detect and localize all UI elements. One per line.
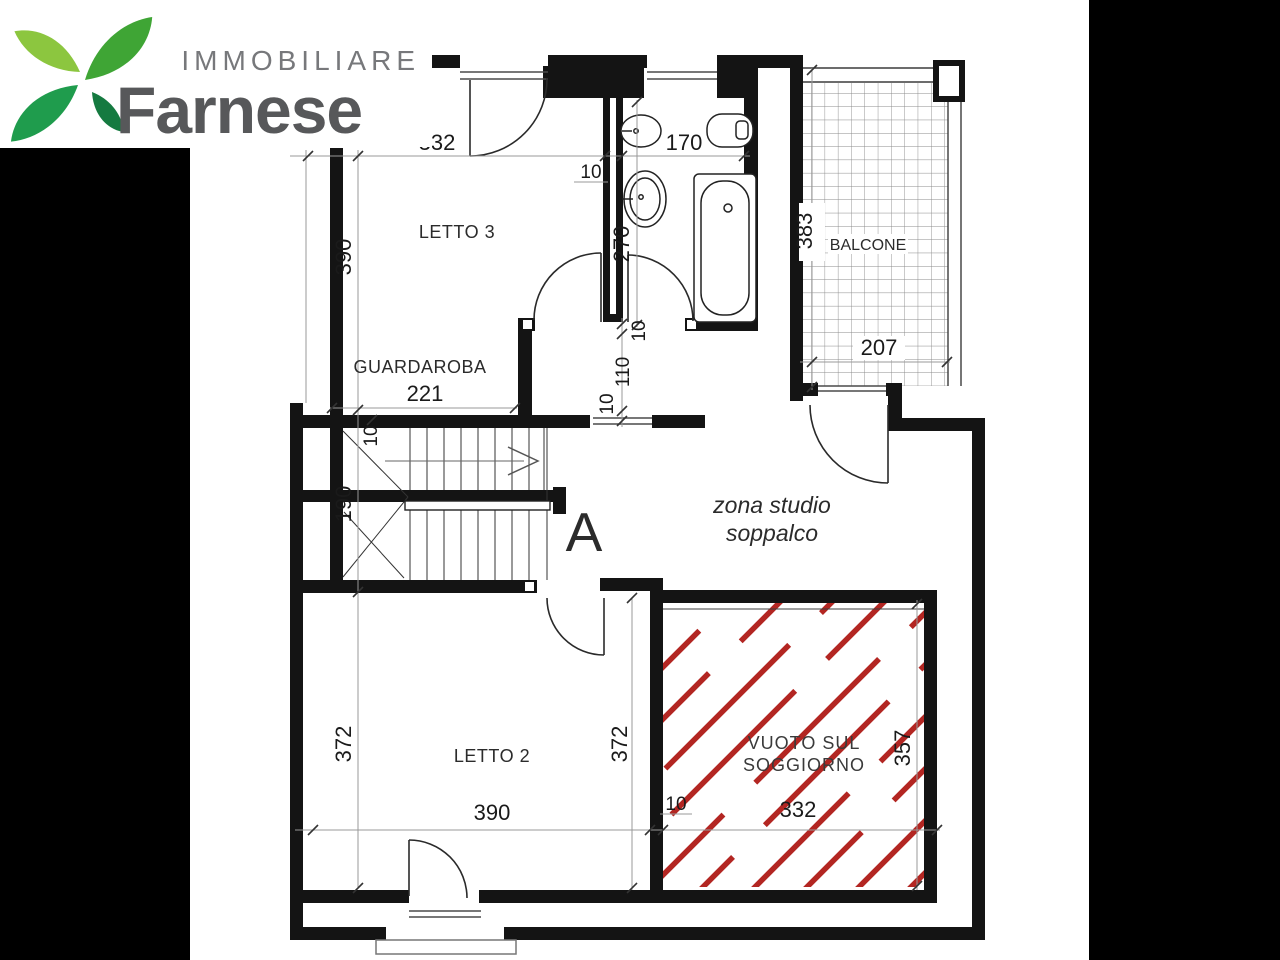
dim-bagno-depth: 270 (609, 226, 634, 263)
door-jamb-letto3 (522, 319, 533, 330)
door-jamb-landing (524, 581, 535, 592)
floorplan-canvas: 332 170 10 390 270 383 207 221 10 110 10… (0, 0, 1280, 960)
dim-letto3-height: 390 (331, 239, 356, 276)
dim-wall-low: 10 (597, 393, 618, 414)
dim-balcone-width: 207 (861, 335, 898, 360)
logo-brand-name: Farnese (116, 73, 362, 147)
dim-stair-wall: 10 (361, 425, 382, 446)
room-label-letto2: LETTO 2 (454, 746, 530, 766)
dim-letto2-height-left: 372 (331, 726, 356, 763)
balcony-pillar-core (939, 66, 959, 96)
dim-vuoto-height: 357 (890, 730, 915, 767)
logo: IMMOBILIARE Farnese (0, 0, 432, 147)
dim-vuoto-width: 332 (780, 797, 817, 822)
dim-wall-bottom: 10 (665, 794, 686, 815)
left-black-bar (0, 148, 190, 960)
room-label-zona-studio-1: zona studio (712, 492, 831, 518)
screenshot-root: 332 170 10 390 270 383 207 221 10 110 10… (0, 0, 1280, 960)
right-black-bar (1089, 0, 1280, 960)
room-label-letto3: LETTO 3 (419, 222, 495, 242)
dim-letto2-height-right: 372 (607, 726, 632, 763)
dim-wall-mid: 10 (629, 320, 650, 341)
dim-stair-landing: 190 (331, 486, 356, 523)
section-label-a: A (566, 501, 603, 563)
dim-passage: 110 (613, 357, 634, 387)
room-label-vuoto-2: SOGGIORNO (743, 755, 865, 775)
room-label-zona-studio-2: soppalco (726, 520, 818, 546)
dim-bagno-width: 170 (666, 130, 703, 155)
toilet-icon (707, 114, 753, 147)
dim-letto2-width: 390 (474, 800, 511, 825)
bathtub-icon (694, 174, 756, 322)
dim-wall-top: 10 (580, 162, 601, 183)
room-label-vuoto-1: VUOTO SUL (748, 733, 861, 753)
dim-guardaroba-width: 221 (407, 381, 444, 406)
room-label-balcone: BALCONE (830, 237, 906, 254)
logo-brand-top: IMMOBILIARE (181, 45, 420, 76)
dim-balcone-height: 383 (792, 213, 817, 250)
room-label-guardaroba: GUARDAROBA (353, 357, 486, 377)
bidet-icon (621, 115, 661, 147)
